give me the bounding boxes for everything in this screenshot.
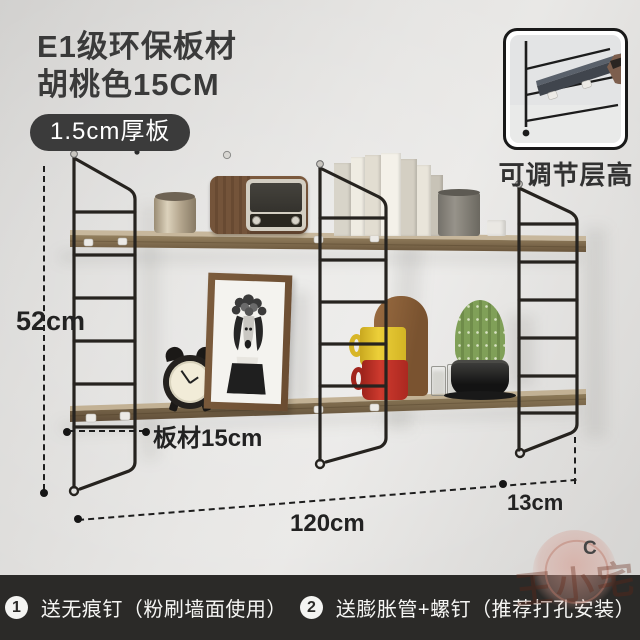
page-title-line1: E1级环保板材 <box>37 28 237 66</box>
page-title-line2: 胡桃色15CM <box>37 66 220 104</box>
height-dimension-dot <box>40 489 48 497</box>
width-dimension-dot <box>74 515 82 523</box>
side-frame-middle <box>316 161 386 468</box>
note2-number-badge: 2 <box>300 596 323 619</box>
depth-dimension-line <box>69 430 145 432</box>
seal-text: 王小宅 <box>503 547 640 616</box>
adjustable-shelf-illustration <box>510 35 621 143</box>
adjustable-height-thumbnail <box>503 28 628 150</box>
depth-dimension-dot <box>142 428 150 436</box>
corner-letter: C <box>583 538 597 560</box>
side-frame-right <box>516 181 577 457</box>
height-label: 52cm <box>16 306 85 337</box>
width-dimension-dot <box>499 480 507 488</box>
product-image: E1级环保板材 胡桃色15CM 1.5cm厚板 可调节层高 <box>0 0 640 640</box>
depth-label: 板材15cm <box>153 418 262 453</box>
watermark-seal: 王小宅 <box>508 518 640 640</box>
note1-number-badge: 1 <box>5 596 28 619</box>
inset-caption: 可调节层高 <box>495 155 637 192</box>
side-gap-label: 13cm <box>507 490 563 516</box>
width-label: 120cm <box>290 510 365 538</box>
adjustable-height-photo <box>510 35 621 143</box>
thickness-badge: 1.5cm厚板 <box>30 114 190 151</box>
side-gap-line <box>574 437 576 484</box>
note1-text: 送无痕钉（粉刷墙面使用） <box>41 593 287 622</box>
